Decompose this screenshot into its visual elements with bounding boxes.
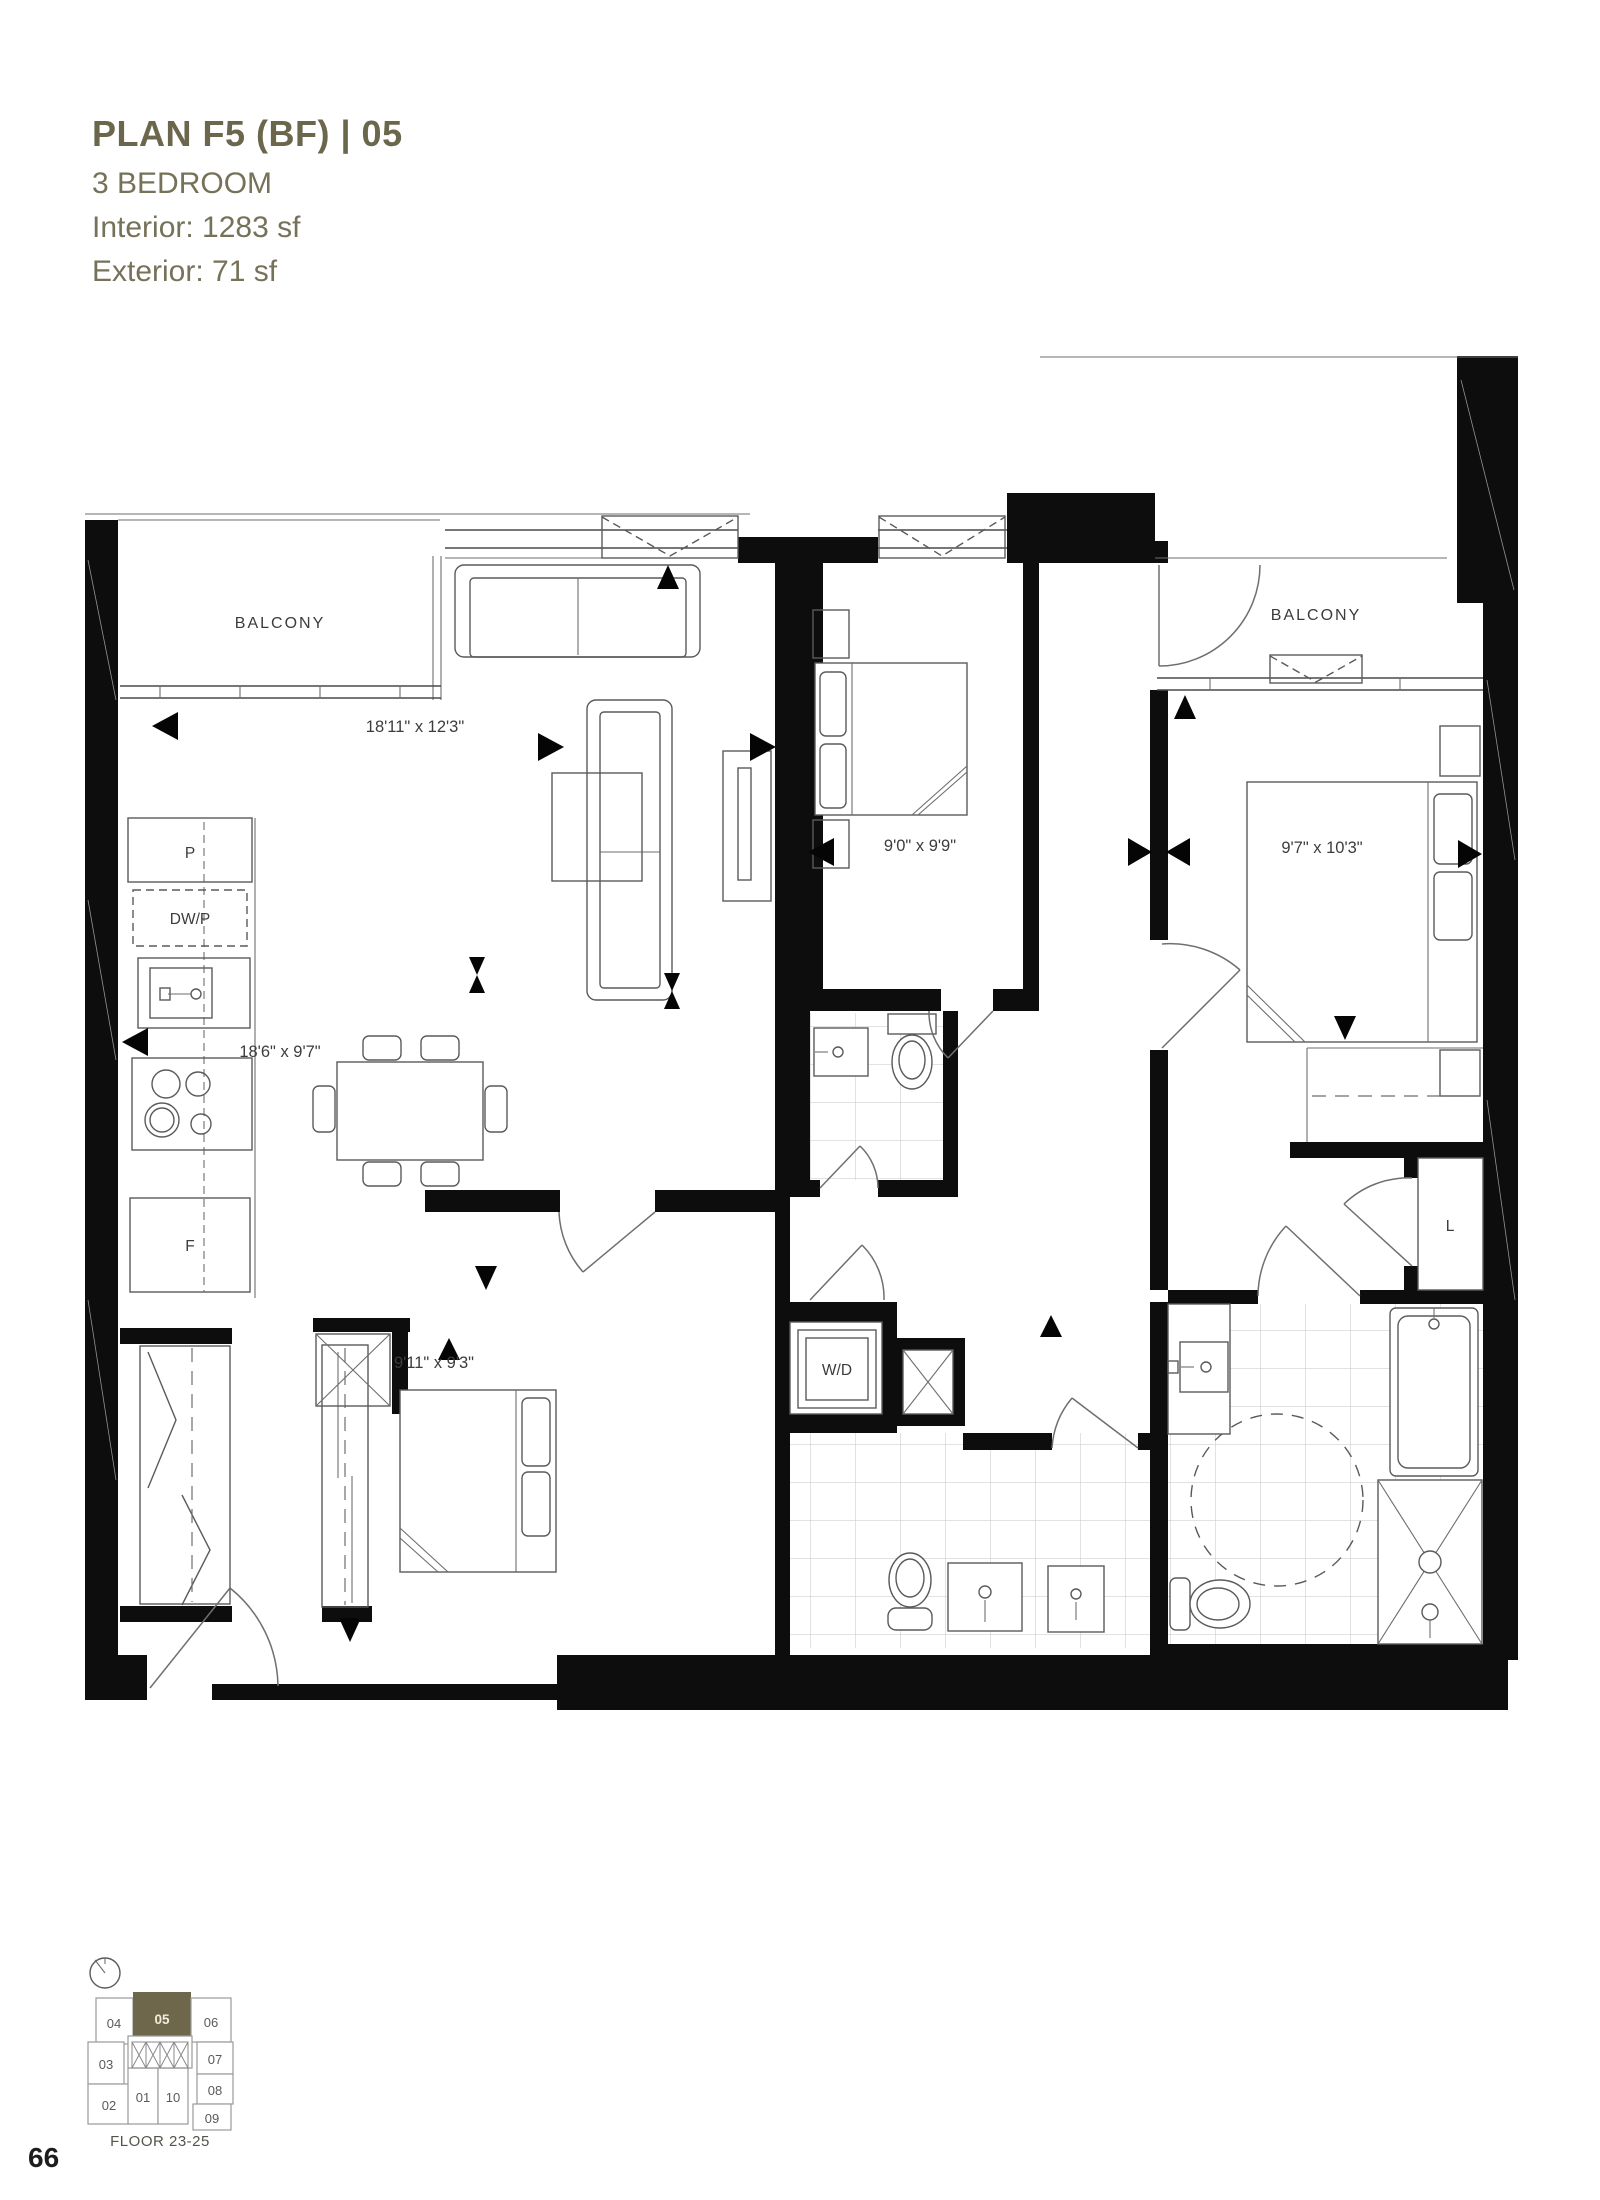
dishwasher-label: DW/P (170, 911, 210, 928)
svg-text:05: 05 (154, 2012, 170, 2027)
shaft-column-2 (903, 1350, 953, 1414)
bedroom-2 (813, 610, 967, 868)
svg-text:03: 03 (99, 2057, 113, 2072)
bed-icon (1247, 782, 1477, 1042)
tv-console-icon (723, 751, 771, 901)
svg-text:02: 02 (102, 2098, 116, 2113)
bedroom-3 (316, 1334, 556, 1607)
living-room (455, 565, 771, 1000)
keyplan: 04 05 06 03 07 08 02 01 10 09 FLOOR 23-2… (88, 1958, 233, 2150)
brochure-page: PLAN F5 (BF) | 05 3 BEDROOM Interior: 12… (0, 0, 1600, 2200)
washer-dryer-label: W/D (822, 1362, 852, 1379)
shower-icon (1378, 1480, 1482, 1644)
compass-icon (90, 1958, 120, 1988)
svg-text:06: 06 (204, 2015, 218, 2030)
keyplan-floor-label: FLOOR 23-25 (110, 2133, 210, 2150)
dining-dim: 18'6" x 9'7" (239, 1043, 320, 1061)
vanity-sink-icon (948, 1563, 1022, 1631)
svg-text:08: 08 (208, 2083, 222, 2098)
master-dim: 9'7" x 10'3" (1281, 839, 1362, 857)
bathroom-sink-icon (814, 1028, 868, 1076)
svg-text:04: 04 (107, 2016, 121, 2031)
kitchen-sink-icon (138, 958, 250, 1028)
foyer (140, 1346, 278, 1688)
svg-text:07: 07 (208, 2052, 222, 2067)
entry-door (150, 1588, 278, 1688)
pantry-label: P (185, 845, 195, 862)
bed-icon (815, 663, 967, 815)
window-symbol-living (602, 516, 738, 558)
toilet-icon (888, 1553, 932, 1630)
ensuite-door (1258, 1226, 1360, 1296)
toilet-icon (888, 1014, 936, 1089)
nightstand-icon (1440, 726, 1480, 776)
balcony-door (1159, 565, 1260, 666)
fridge-label: F (185, 1238, 194, 1255)
master-door (1162, 944, 1240, 1048)
bedroom2-dim: 9'0" x 9'9" (884, 837, 956, 855)
kitchen (128, 818, 255, 1298)
vanity-sink-icon (1048, 1566, 1104, 1632)
laundry-door (810, 1245, 884, 1300)
keyplan-core (128, 2036, 192, 2068)
sliding-closet (322, 1345, 368, 1607)
balcony-right-label: BALCONY (1271, 607, 1361, 624)
svg-text:09: 09 (205, 2111, 219, 2126)
linen-door (1344, 1178, 1412, 1266)
floor-plan-drawing: BALCONY BALCONY 18'11" x 12'3" 18'6" x 9… (0, 0, 1600, 2200)
bathroom-sink-icon (1168, 1304, 1230, 1434)
toilet-icon (1170, 1578, 1250, 1630)
balcony-left-label: BALCONY (235, 615, 325, 632)
svg-text:10: 10 (166, 2090, 180, 2105)
nightstand-icon (1440, 1050, 1480, 1096)
svg-text:01: 01 (136, 2090, 150, 2105)
window-symbol-bedroom2 (879, 516, 1005, 558)
master-bedroom (1247, 726, 1483, 1142)
bedroom3-dim: 9'11" x 9'3" (394, 1354, 474, 1372)
laundry-closet (790, 1322, 953, 1414)
living-dim: 18'11" x 12'3" (366, 718, 465, 736)
page-number: 66 (28, 2142, 59, 2174)
master-closet (1307, 1048, 1483, 1142)
cooktop-icon (132, 1058, 252, 1150)
bathtub-icon (1390, 1308, 1478, 1476)
bedroom3-door (559, 1212, 655, 1272)
dining-area (313, 1036, 507, 1186)
dining-table-icon (337, 1062, 483, 1160)
linen-label: L (1446, 1218, 1455, 1235)
sofa-side-icon (587, 700, 672, 1000)
coat-closet (140, 1346, 230, 1605)
bed-icon (400, 1390, 556, 1572)
